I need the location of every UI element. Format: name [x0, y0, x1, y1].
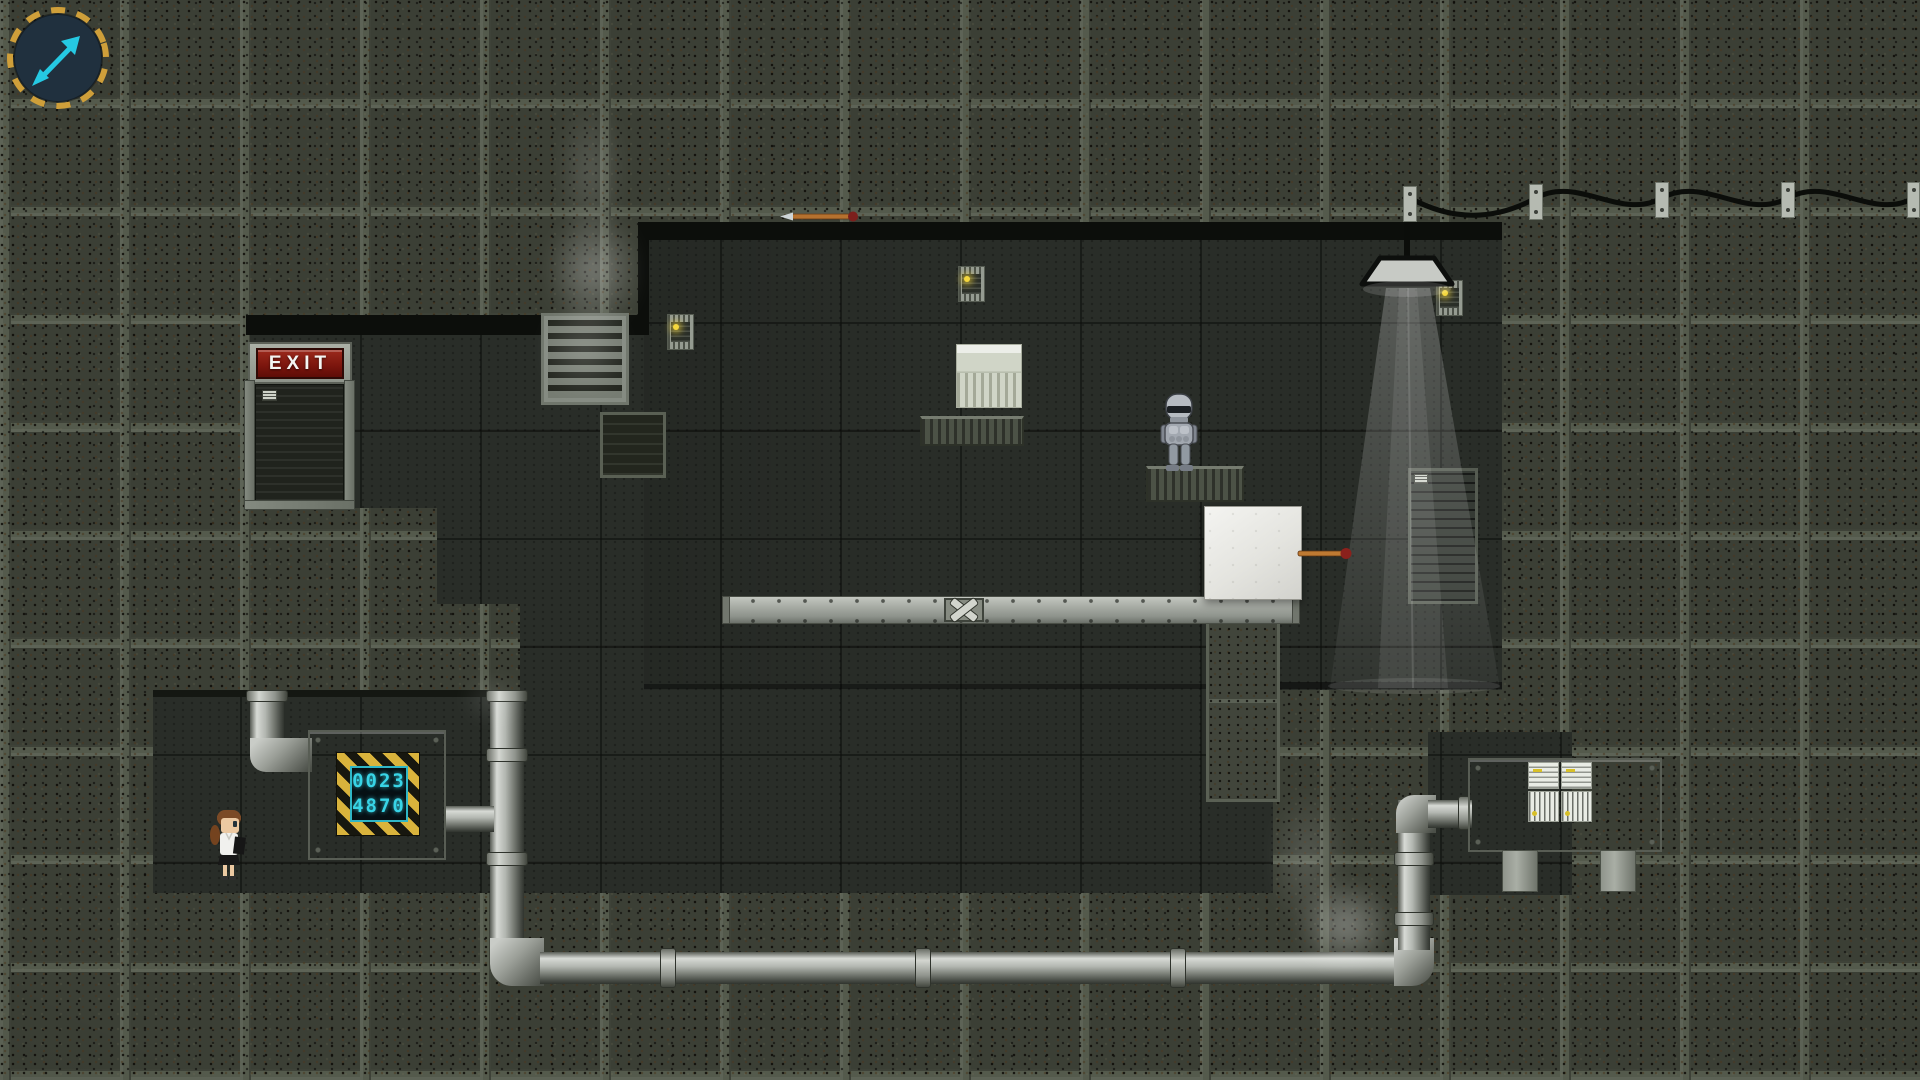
cable-bracket — [1403, 186, 1417, 222]
steam-puff — [540, 300, 630, 400]
cable-bracket — [1781, 182, 1795, 218]
dart-in-box — [1298, 548, 1352, 559]
cable-bracket — [1655, 182, 1669, 218]
fx-layer — [0, 0, 1920, 1080]
lamp-shade — [1362, 258, 1452, 284]
aim-direction-indicator[interactable] — [6, 6, 110, 110]
game-viewport: EXIT 0023 4870 — [0, 0, 1920, 1080]
dart-on-ceiling — [780, 212, 858, 222]
steam-puff — [1268, 790, 1348, 930]
steam-puff — [462, 676, 522, 722]
cable-bracket — [1529, 184, 1543, 220]
steam-puff — [556, 96, 626, 246]
cable-bracket — [1907, 182, 1920, 218]
